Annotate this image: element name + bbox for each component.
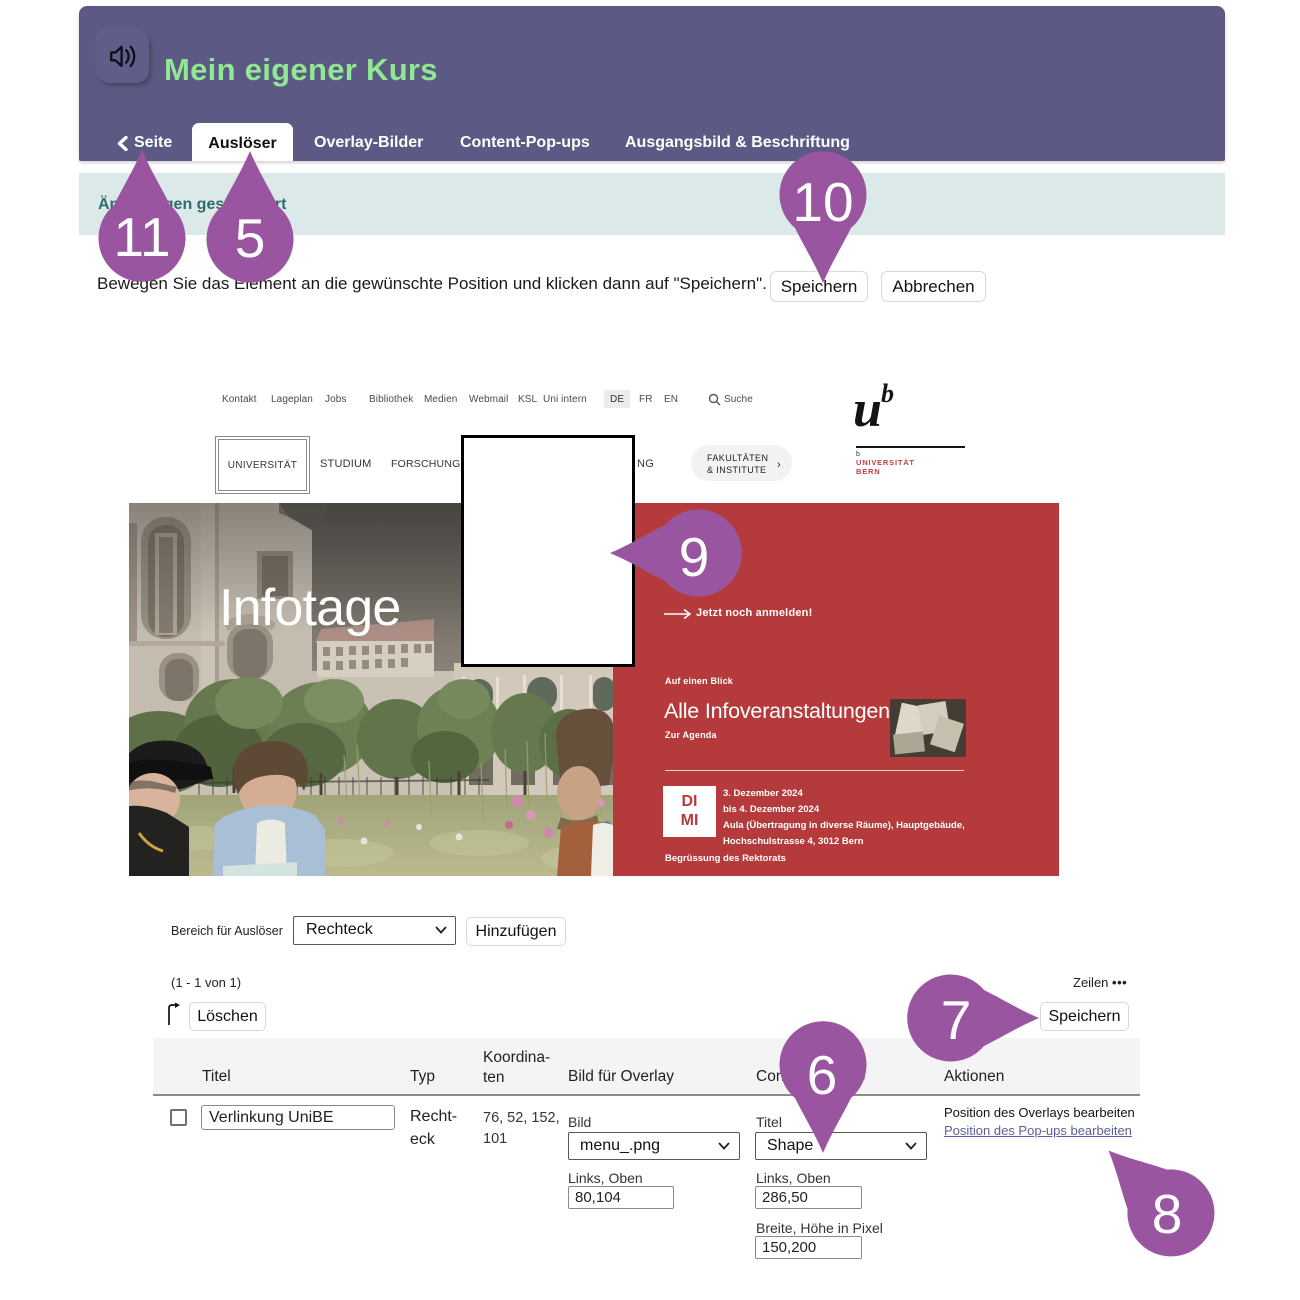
svg-text:b: b: [881, 379, 894, 408]
svg-text:BERN: BERN: [856, 467, 880, 476]
svg-text:u: u: [853, 381, 882, 438]
svg-text:b: b: [856, 451, 860, 458]
svg-text:UNIVERSITÄT: UNIVERSITÄT: [856, 458, 915, 467]
svg-text:Infotage: Infotage: [219, 579, 401, 637]
svg-text:8: 8: [1152, 1183, 1183, 1245]
